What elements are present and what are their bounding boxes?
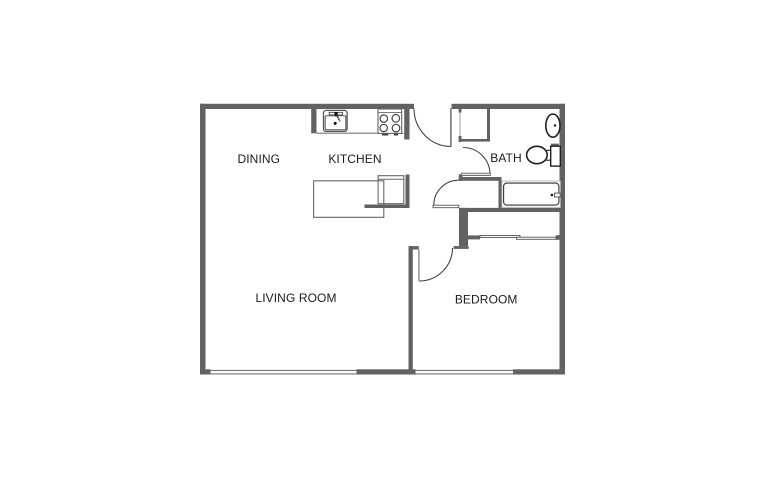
svg-text:BEDROOM: BEDROOM — [455, 292, 518, 306]
svg-text:LIVING ROOM: LIVING ROOM — [255, 291, 336, 305]
svg-text:DINING: DINING — [237, 152, 280, 166]
svg-text:BATH: BATH — [490, 151, 522, 165]
svg-text:KITCHEN: KITCHEN — [328, 152, 381, 166]
